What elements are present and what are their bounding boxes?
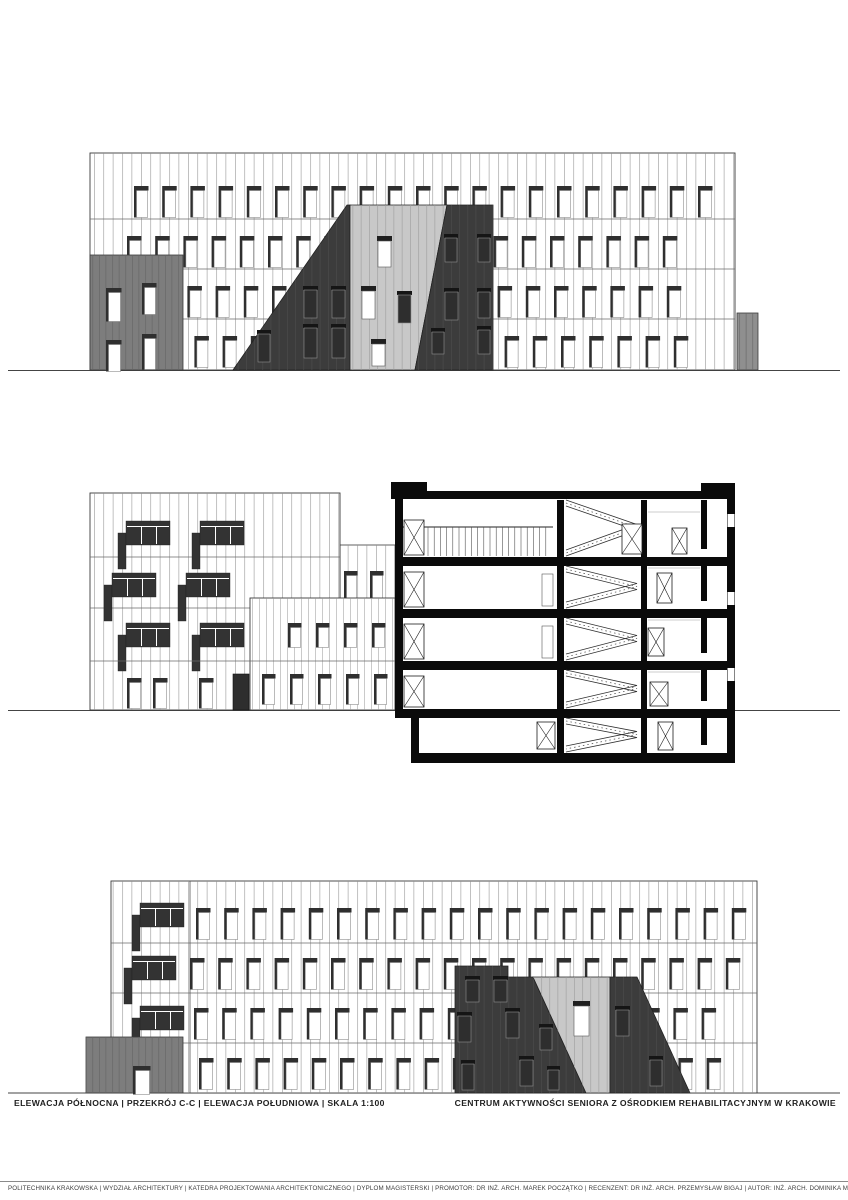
section-basement-slab: [411, 753, 727, 763]
presentation-sheet: ELEWACJA PÓŁNOCNA | PRZEKRÓJ C-C | ELEWA…: [0, 0, 848, 1200]
north-elevation-drawing: [90, 153, 758, 372]
section-roof-slab: [393, 491, 735, 499]
section-slab-4: [403, 661, 727, 670]
section-slab-3: [403, 609, 727, 618]
sheet-canvas: [0, 0, 848, 1200]
section-wall-right: [727, 491, 735, 763]
section-wall-left: [395, 491, 403, 718]
south-elevation-drawing: [86, 881, 757, 1095]
footer-credits: POLITECHNIKA KRAKOWSKA | WYDZIAŁ ARCHITE…: [8, 1185, 848, 1192]
section-ground-slab: [403, 709, 727, 718]
section-cc-drawing: [90, 482, 735, 763]
drawing-captions: ELEWACJA PÓŁNOCNA | PRZEKRÓJ C-C | ELEWA…: [14, 1098, 385, 1108]
middle-left-elevation: [90, 493, 395, 710]
section-stair-wall-left: [557, 500, 564, 753]
project-title: CENTRUM AKTYWNOŚCI SENIORA Z OŚRODKIEM R…: [455, 1098, 836, 1108]
section-slab-2: [403, 557, 727, 566]
section-cut: [391, 482, 735, 763]
footer-divider: [0, 1181, 848, 1182]
